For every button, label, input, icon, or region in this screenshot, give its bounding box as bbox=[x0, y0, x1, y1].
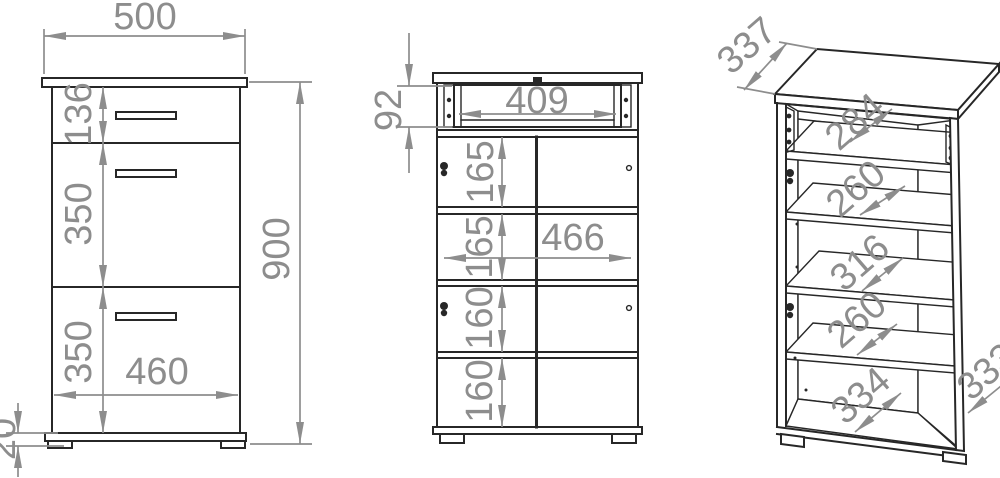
dim-front-width-label: 500 bbox=[113, 0, 176, 38]
cabinet-foot-right bbox=[943, 452, 966, 464]
drawer-runner-right bbox=[621, 85, 631, 127]
drawer-runner-left bbox=[444, 85, 454, 127]
dim-top-depth-label: 337 bbox=[709, 9, 784, 82]
perspective-view: 337 284 260 316 260 bbox=[709, 9, 1000, 464]
cabinet-foot-left bbox=[48, 441, 72, 448]
front-view-dimensions: 500 136 350 350 460 900 bbox=[0, 0, 312, 477]
runner-screw bbox=[447, 114, 451, 118]
dim-drawer-box-height-label: 92 bbox=[368, 89, 410, 131]
hinge-left-lower bbox=[441, 310, 447, 316]
hinge-left-upper bbox=[440, 162, 448, 170]
cabinet-technical-drawing: 500 136 350 350 460 900 bbox=[0, 0, 1000, 478]
shelf-pin-hole bbox=[796, 266, 799, 269]
cabinet-foot-right bbox=[221, 441, 245, 448]
hinge-plate-lower bbox=[787, 312, 793, 318]
cabinet-foot-right bbox=[612, 434, 636, 443]
dim-compartment3-label: 160 bbox=[459, 286, 501, 349]
dim-inner-width-label: 460 bbox=[125, 351, 188, 393]
shelf-pin-hole bbox=[805, 389, 808, 392]
hinge-plate-upper bbox=[787, 178, 793, 184]
cabinet-foot-left bbox=[440, 434, 464, 443]
hinge-plate-upper bbox=[786, 169, 794, 177]
front-view: 500 136 350 350 460 900 bbox=[0, 0, 312, 477]
hinge-right-upper bbox=[627, 166, 632, 171]
plinth bbox=[45, 433, 246, 441]
dim-compartment1-label: 165 bbox=[460, 140, 502, 203]
dim-drawer-height-label: 136 bbox=[58, 82, 100, 145]
runner-screw bbox=[624, 114, 628, 118]
hinge-left-upper bbox=[441, 170, 447, 176]
dim-total-height-label: 900 bbox=[256, 217, 298, 280]
upper-door-handle bbox=[116, 170, 176, 177]
section-view-dimensions: 92 409 165 165 160 160 466 bbox=[368, 33, 631, 427]
slide-screw bbox=[787, 140, 792, 145]
slide-screw bbox=[787, 128, 792, 133]
drawer-handle bbox=[116, 112, 176, 119]
hinge-left-lower bbox=[440, 302, 448, 310]
runner-screw bbox=[624, 98, 628, 102]
technical-drawing-canvas: 500 136 350 350 460 900 bbox=[0, 0, 1000, 478]
dim-compartment2-label: 165 bbox=[459, 215, 501, 278]
hinge-plate-lower bbox=[786, 303, 794, 311]
runner-screw bbox=[447, 98, 451, 102]
section-view: 92 409 165 165 160 160 466 bbox=[368, 33, 642, 443]
dim-bottom-height-label: 350 bbox=[58, 320, 100, 383]
dim-drawer-inner-width-label: 409 bbox=[505, 80, 568, 122]
shelf-pin-hole bbox=[796, 223, 799, 226]
hinge-right-lower bbox=[627, 306, 632, 311]
shelf-pin-hole bbox=[794, 357, 797, 360]
dim-plinth-height-label: 20 bbox=[0, 418, 24, 460]
lower-door-handle bbox=[116, 313, 176, 320]
dim-compartment4-label: 160 bbox=[459, 359, 501, 422]
slide-screw bbox=[787, 114, 792, 119]
cabinet-foot-left bbox=[781, 434, 804, 447]
dim-middle-height-label: 350 bbox=[58, 182, 100, 245]
dim-section-inner-width-label: 466 bbox=[541, 217, 604, 259]
